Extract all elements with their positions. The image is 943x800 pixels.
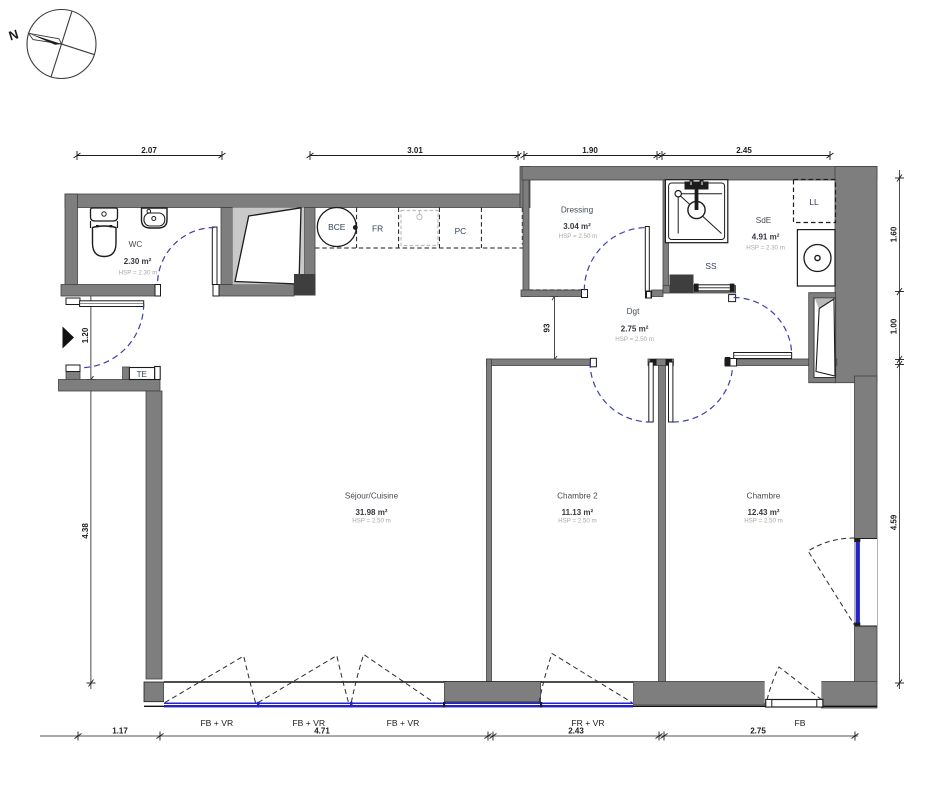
- svg-text:HSP = 2.30 m: HSP = 2.30 m: [119, 270, 158, 277]
- svg-text:12.43 m²: 12.43 m²: [747, 508, 779, 517]
- svg-text:BCE: BCE: [328, 222, 346, 232]
- svg-text:4.38: 4.38: [81, 523, 90, 539]
- svg-text:Dressing: Dressing: [561, 206, 594, 215]
- svg-text:Séjour/Cuisine: Séjour/Cuisine: [345, 492, 399, 501]
- svg-text:SS: SS: [705, 261, 717, 271]
- svg-text:FB + VR: FB + VR: [200, 718, 233, 728]
- svg-text:1.90: 1.90: [582, 146, 598, 155]
- svg-text:2.30 m²: 2.30 m²: [124, 257, 152, 266]
- svg-text:2.75 m²: 2.75 m²: [621, 325, 649, 334]
- svg-text:SdE: SdE: [756, 216, 772, 225]
- svg-text:93: 93: [543, 323, 552, 332]
- svg-text:4.91 m²: 4.91 m²: [752, 233, 780, 242]
- svg-text:FB + VR: FB + VR: [292, 718, 325, 728]
- svg-text:HSP = 2.50 m: HSP = 2.50 m: [558, 518, 597, 525]
- svg-text:1.20: 1.20: [81, 327, 90, 343]
- svg-text:3.04 m²: 3.04 m²: [563, 222, 591, 231]
- svg-text:HSP = 2.50 m: HSP = 2.50 m: [615, 336, 654, 343]
- svg-text:1.00: 1.00: [890, 318, 899, 334]
- svg-text:PC: PC: [455, 226, 467, 236]
- svg-text:1.60: 1.60: [890, 226, 899, 242]
- svg-text:HSP = 2.50 m: HSP = 2.50 m: [559, 233, 598, 240]
- svg-text:3.01: 3.01: [407, 146, 423, 155]
- svg-text:TE: TE: [137, 370, 147, 379]
- svg-text:Chambre: Chambre: [747, 492, 781, 501]
- svg-text:FB + VR: FB + VR: [387, 718, 420, 728]
- svg-text:2.45: 2.45: [736, 146, 752, 155]
- svg-text:HSP = 2.50 m: HSP = 2.50 m: [352, 518, 391, 525]
- svg-text:4.59: 4.59: [890, 514, 899, 530]
- svg-text:FR + VR: FR + VR: [571, 718, 604, 728]
- svg-text:2.75: 2.75: [750, 727, 766, 736]
- svg-text:Chambre 2: Chambre 2: [557, 492, 598, 501]
- svg-text:31.98 m²: 31.98 m²: [355, 508, 387, 517]
- svg-text:11.13 m²: 11.13 m²: [562, 508, 594, 517]
- svg-text:WC: WC: [129, 240, 143, 249]
- svg-text:1.17: 1.17: [112, 727, 128, 736]
- svg-text:LL: LL: [809, 197, 819, 207]
- svg-text:FR: FR: [372, 224, 383, 234]
- svg-text:HSP = 2.50 m: HSP = 2.50 m: [744, 518, 783, 525]
- svg-text:2.07: 2.07: [141, 146, 157, 155]
- svg-text:Dgt: Dgt: [627, 307, 640, 316]
- svg-text:HSP = 2.30 m: HSP = 2.30 m: [746, 245, 785, 252]
- svg-text:FB: FB: [795, 718, 806, 728]
